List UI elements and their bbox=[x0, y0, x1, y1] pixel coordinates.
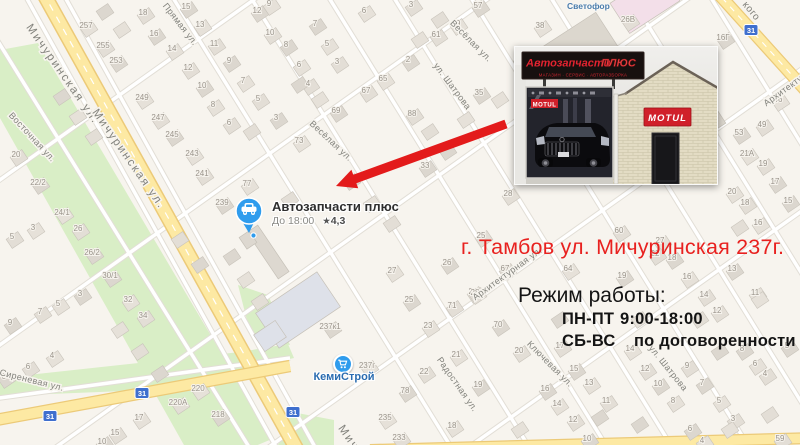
building-number: 27 bbox=[388, 266, 397, 275]
building-number: 3 bbox=[78, 289, 83, 298]
building-number: 28 bbox=[504, 189, 513, 198]
poi-label-svetofor[interactable]: Светофор bbox=[567, 1, 610, 11]
building-number: 13 bbox=[196, 20, 205, 29]
building-number: 5 bbox=[256, 94, 261, 103]
building-number: 10 bbox=[98, 437, 107, 445]
building-number: 38 bbox=[536, 21, 545, 30]
building-number: 53 bbox=[735, 128, 744, 137]
drainpipe bbox=[614, 94, 618, 184]
wall-motul-text: MOTUL bbox=[648, 113, 687, 124]
building-number: 6 bbox=[753, 359, 758, 368]
building-number: 245 bbox=[165, 130, 179, 139]
building-number: 7 bbox=[313, 19, 318, 28]
store-photo: Автозапчасти ПЛЮС МАГАЗИН · СЕРВИС · АВТ… bbox=[514, 46, 718, 185]
building-number: 65 bbox=[379, 74, 388, 83]
address-annotation: г. Тамбов ул. Мичуринская 237г. bbox=[461, 235, 784, 260]
building-number: 237г bbox=[359, 361, 375, 370]
pin-anchor-dot bbox=[251, 233, 256, 238]
hours-time-weekend: по договоренности bbox=[634, 332, 796, 350]
building-number: 5 bbox=[717, 396, 722, 405]
building-number: 255 bbox=[96, 41, 110, 50]
signboard-text-sub: МАГАЗИН · СЕРВИС · АВТОРАЗБОРКА bbox=[539, 73, 627, 78]
building-number: 7 bbox=[700, 378, 705, 387]
building-number: 21 bbox=[452, 350, 461, 359]
hours-days-weekend: СБ-ВС bbox=[562, 332, 634, 351]
building-number: 16 bbox=[541, 384, 550, 393]
building-number: 235 bbox=[378, 413, 392, 422]
building-number: 18 bbox=[139, 8, 148, 17]
hours-days-weekdays: ПН-ПТ bbox=[562, 310, 620, 329]
building-number: 2 bbox=[406, 55, 411, 64]
building-number: 60 bbox=[615, 226, 624, 235]
building-number: 3 bbox=[274, 113, 279, 122]
svg-text:31: 31 bbox=[747, 26, 755, 35]
building-number: 69 bbox=[332, 106, 341, 115]
building-number: 12 bbox=[569, 415, 578, 424]
building-number: 34 bbox=[139, 311, 148, 320]
banner-motul-text: MOTUL bbox=[533, 102, 557, 108]
building-number: 9 bbox=[8, 318, 13, 327]
star-icon: ★ bbox=[322, 216, 331, 227]
building-number: 19 bbox=[618, 271, 627, 280]
building-number: 11 bbox=[210, 39, 219, 48]
hours-row-weekend: СБ-ВСпо договоренности bbox=[562, 332, 796, 351]
building-number: 19 bbox=[759, 159, 768, 168]
svg-text:31: 31 bbox=[289, 408, 297, 417]
building-number: 20 bbox=[12, 150, 21, 159]
poi-label-kemistroy[interactable]: КемиСтрой bbox=[312, 371, 376, 383]
building-number: 16 bbox=[754, 218, 763, 227]
car-image bbox=[535, 123, 610, 167]
building-number: 59 bbox=[776, 434, 785, 443]
building-number: 16Г bbox=[716, 33, 730, 42]
building-number: 26 bbox=[74, 224, 83, 233]
building-number: 5 bbox=[10, 232, 15, 241]
map-screenshot: 1816141210861513119751225725525324924724… bbox=[0, 0, 800, 445]
building-number: 8 bbox=[211, 100, 216, 109]
building-number: 22/2 bbox=[30, 178, 46, 187]
building-number: 4 bbox=[50, 351, 55, 360]
building-number: 12 bbox=[184, 63, 193, 72]
hours-row-weekdays: ПН-ПТ9:00-18:00 bbox=[562, 310, 796, 329]
building-number: 22 bbox=[420, 367, 429, 376]
building-number: 10 bbox=[654, 379, 663, 388]
poi-open-until: До 18:00 bbox=[272, 215, 314, 227]
building-number: 32 bbox=[124, 295, 133, 304]
building-number: 3 bbox=[409, 0, 414, 9]
building-number: 25 bbox=[405, 295, 414, 304]
building-number: 13 bbox=[585, 378, 594, 387]
road-number-badge: 31 bbox=[744, 25, 758, 36]
building-number: 15 bbox=[570, 364, 579, 373]
building-number: 5 bbox=[325, 39, 330, 48]
building-number: 239 bbox=[215, 198, 229, 207]
entrance-door bbox=[652, 133, 679, 184]
poi-subtitle: До 18:00 ★4,3 bbox=[272, 215, 399, 227]
building-number: 247 bbox=[151, 113, 165, 122]
building-number: 6 bbox=[227, 118, 232, 127]
working-hours-title: Режим работы: bbox=[518, 284, 796, 307]
road-number-badge: 31 bbox=[286, 407, 300, 418]
building-number: 8 bbox=[284, 40, 289, 49]
building-number: 13 bbox=[728, 264, 737, 273]
building-number: 15 bbox=[111, 428, 120, 437]
building-number: 220 bbox=[191, 384, 205, 393]
road-number-badge: 31 bbox=[43, 411, 57, 422]
working-hours-block: Режим работы: ПН-ПТ9:00-18:00 СБ-ВСпо до… bbox=[518, 284, 796, 351]
building-number: 6 bbox=[297, 60, 302, 69]
building-number: 17 bbox=[771, 177, 780, 186]
building-number: 241 bbox=[195, 169, 209, 178]
building-number: 6 bbox=[362, 6, 367, 15]
building-number: 78 bbox=[401, 386, 410, 395]
building-number: 26В bbox=[621, 15, 635, 24]
building-number: 3 bbox=[31, 223, 36, 232]
building-number: 14 bbox=[553, 399, 562, 408]
building-number: 3 bbox=[731, 414, 736, 423]
shopping-cart-icon bbox=[337, 358, 349, 370]
building-number: 4 bbox=[700, 436, 705, 445]
building-number: 35 bbox=[475, 88, 484, 97]
building-number: 57 bbox=[474, 1, 483, 10]
signboard-text-main: Автозапчасти bbox=[525, 58, 611, 70]
building-number: 16 bbox=[150, 29, 159, 38]
signboard-text-plus: ПЛЮС bbox=[601, 58, 637, 70]
svg-text:31: 31 bbox=[46, 412, 54, 421]
building-number: 18 bbox=[448, 421, 457, 430]
building-number: 15 bbox=[784, 196, 793, 205]
poi-title[interactable]: Автозапчасти плюс bbox=[272, 199, 399, 214]
building-number: 8 bbox=[671, 396, 676, 405]
building-number: 14 bbox=[168, 44, 177, 53]
building-number: 6 bbox=[688, 424, 693, 433]
building-number: 17 bbox=[135, 413, 144, 422]
building-number: 5 bbox=[56, 299, 61, 308]
building-number: 61 bbox=[432, 30, 441, 39]
building-number: 220А bbox=[169, 398, 188, 407]
building-number: 88 bbox=[408, 109, 417, 118]
building-number: 26/2 bbox=[84, 248, 100, 257]
building-number: 23 bbox=[424, 321, 433, 330]
building-number: 237к1 bbox=[319, 322, 341, 331]
building-number: 73 bbox=[295, 136, 304, 145]
building-number: 9 bbox=[685, 361, 690, 370]
building-number: 7 bbox=[241, 76, 246, 85]
hours-time-weekdays: 9:00-18:00 bbox=[620, 310, 703, 328]
building-number: 10 bbox=[583, 434, 592, 443]
building-number: 243 bbox=[185, 149, 199, 158]
car-banner: MOTUL bbox=[526, 87, 613, 178]
building-number: 7 bbox=[38, 307, 43, 316]
building-number: 71 bbox=[448, 301, 457, 310]
building-number: 26 bbox=[443, 258, 452, 267]
building-number: 33 bbox=[421, 161, 430, 170]
building-number: 9 bbox=[227, 56, 232, 65]
building-number: 20 bbox=[728, 187, 737, 196]
building-number: 16 bbox=[683, 272, 692, 281]
building-number: 9 bbox=[267, 0, 272, 8]
building-number: 67 bbox=[362, 86, 371, 95]
building-number: 18 bbox=[741, 198, 750, 207]
building-number: 12 bbox=[253, 6, 262, 15]
svg-text:31: 31 bbox=[138, 389, 146, 398]
building-number: 10 bbox=[198, 81, 207, 90]
building-number: 249 bbox=[135, 93, 149, 102]
building-number: 12 bbox=[641, 364, 650, 373]
building-number: 21А bbox=[740, 149, 755, 158]
building-number: 70 bbox=[494, 320, 503, 329]
building-number: 218 bbox=[211, 410, 225, 419]
photo-left-wall bbox=[515, 65, 526, 184]
building-number: 6 bbox=[26, 362, 31, 371]
building-number: 15 bbox=[182, 2, 191, 11]
building-number: 4 bbox=[763, 369, 768, 378]
building-number: 77 bbox=[243, 179, 252, 188]
building-number: 257 bbox=[79, 21, 93, 30]
building-number: 253 bbox=[109, 56, 123, 65]
building-number: 233 bbox=[392, 433, 406, 442]
road-number-badge: 31 bbox=[135, 388, 149, 399]
building-number: 3 bbox=[335, 57, 340, 66]
building-number: 64 bbox=[564, 264, 573, 273]
building-number: 11 bbox=[602, 396, 611, 405]
building-number: 30/1 bbox=[102, 271, 118, 280]
building-number: 4 bbox=[306, 79, 311, 88]
building-number: 49 bbox=[758, 120, 767, 129]
poi-rating: 4,3 bbox=[331, 215, 346, 227]
building-number: 19 bbox=[474, 380, 483, 389]
map-pin-label[interactable]: Автозапчасти плюс До 18:00 ★4,3 bbox=[272, 199, 399, 227]
building-number: 10 bbox=[266, 28, 275, 37]
store-photo-image: Автозапчасти ПЛЮС МАГАЗИН · СЕРВИС · АВТ… bbox=[515, 47, 717, 184]
building-number: 24/1 bbox=[54, 208, 70, 217]
